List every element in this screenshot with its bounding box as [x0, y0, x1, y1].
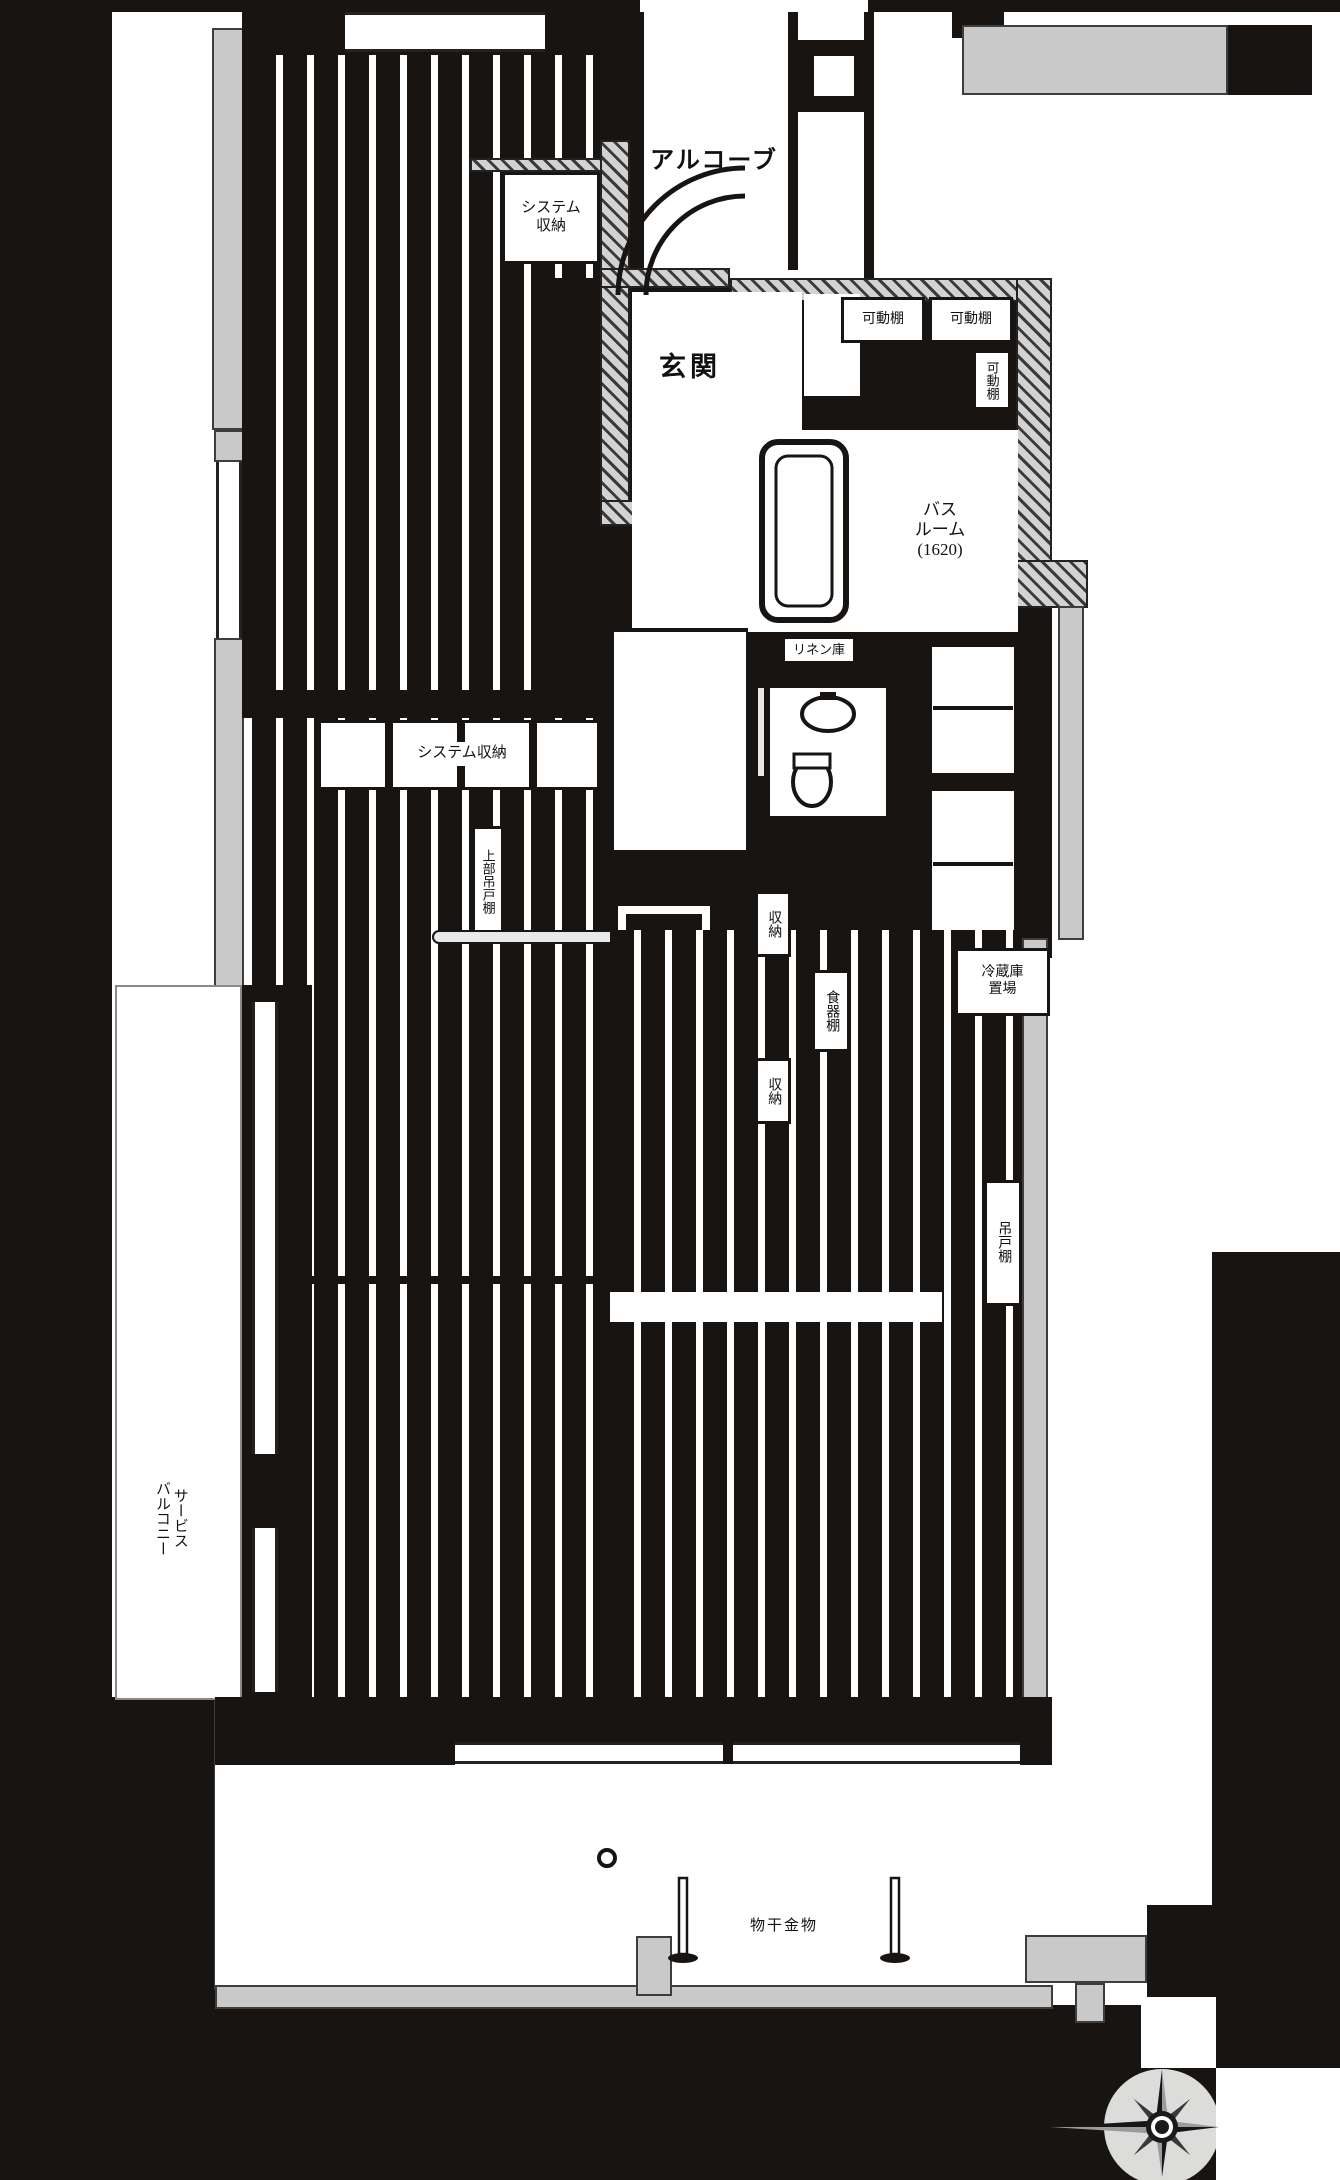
- washbasin-icon: [802, 692, 854, 731]
- entrance-door-arc-icon: [618, 168, 745, 295]
- fixtures-overlay: [0, 0, 1340, 2180]
- toilet-icon: [793, 754, 831, 806]
- laundry-pole-icon-1: [668, 1878, 698, 1963]
- bathtub-icon: [762, 442, 846, 620]
- compass-icon: [1050, 2069, 1220, 2180]
- spigot-icon: [599, 1850, 615, 1866]
- floor-plan-canvas: システム 収納: [0, 0, 1340, 2180]
- laundry-pole-icon-2: [880, 1878, 910, 1963]
